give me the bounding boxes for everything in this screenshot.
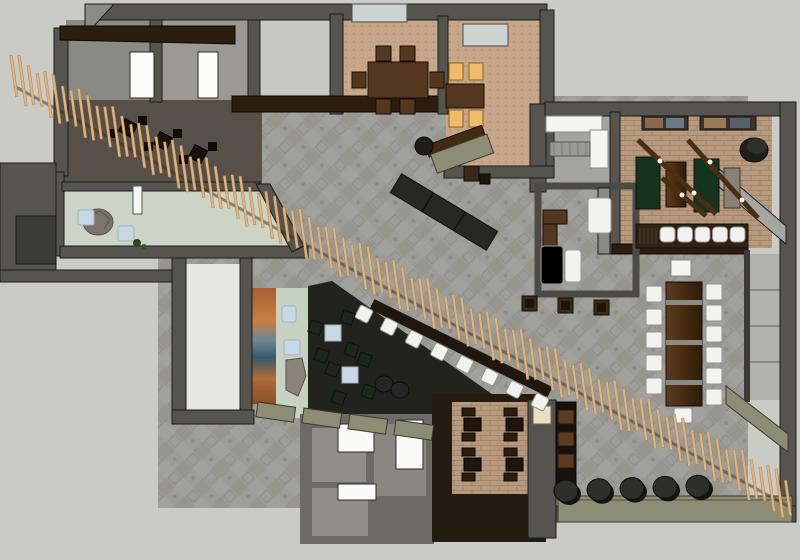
skylight-window-1 [352,4,407,22]
black-stool [415,137,433,155]
dining-table-dark [464,458,481,471]
office-table-2 [565,250,581,282]
cylinder-pouf [653,476,677,498]
corridor-east-wall [240,252,252,414]
table-chair [706,389,722,405]
white-panel-room2 [338,484,376,500]
dining-chair-dark [504,408,517,416]
entry-bench [78,210,94,225]
dining-chair [352,72,366,88]
corridor-floor [186,264,240,412]
metal-band [666,300,702,305]
table-chair [646,286,662,302]
dark-chair [173,129,182,138]
left-bottom-wall [0,270,178,282]
dining-chair [430,72,444,88]
bar-stool [730,227,745,242]
round-pouf [375,376,393,392]
office-table [588,198,611,233]
small-table [464,166,479,181]
north-wall [85,4,547,20]
backroom-east-floor [260,20,332,100]
entry-south-wall [60,246,308,258]
cylinder-pouf [587,479,611,501]
bar-stool [660,227,675,242]
bar-stool [713,227,728,242]
bar-stool [678,227,693,242]
corridor-west-wall [172,252,186,418]
picture-art [666,118,684,128]
table-chair [646,332,662,348]
floorplan-canvas [0,0,800,560]
plant [141,244,147,250]
dining-chair [400,46,415,61]
table-chair [706,347,722,363]
lounge-table [325,325,341,341]
dining-table-right [446,84,484,108]
picture-art [730,118,750,128]
left-block-door [16,216,56,264]
cylinder-pouf [620,478,644,500]
bar-stool [695,227,710,242]
table-chair [646,355,662,371]
window-frame-west [744,250,750,402]
dining-chair [376,99,391,114]
entry-bench [118,226,134,241]
white-door-panel-2 [198,52,218,98]
lounge-bench [282,306,296,322]
dining-chair-dark [504,448,517,456]
corridor-end-wall [172,410,254,424]
rightwing-north-wall [545,102,796,116]
lit-chair [469,63,483,80]
dining-chair-dark [462,433,475,441]
guest-stool-seat [597,303,606,312]
white-door-panel-1 [130,52,154,98]
lit-chair [449,63,463,80]
plant [133,239,141,247]
round-column-top [747,138,767,154]
dining-table-dark [506,418,523,431]
rightwing-east-wall [780,102,796,522]
small-chair [480,174,490,184]
lit-chair [469,110,483,127]
lit-chair [449,110,463,127]
shelf-boxes [558,410,574,468]
cylinder-pouf [554,480,578,502]
dining-chair-dark [462,448,475,456]
entry-light-column [133,186,142,214]
dining-table-dark [506,458,523,471]
dining-chair [376,46,391,61]
picture-art [704,118,726,128]
dining-table-left [368,62,428,98]
table-chair [706,326,722,342]
guest-stool-seat [525,299,534,308]
skylight-window-2 [463,24,508,46]
metal-band [666,340,702,345]
dining-chair-dark [462,408,475,416]
backroom-divider-2 [248,20,260,102]
dark-chair [208,142,217,151]
green-booth [636,157,660,209]
host-stand [671,260,691,276]
dining-table-dark [464,418,481,431]
lounge-bench [284,340,300,355]
cylinder-pouf [686,475,710,497]
table-chair [646,309,662,325]
dining-chair-dark [462,473,475,481]
round-pouf [391,382,409,398]
metal-band [666,380,702,385]
prep-counter [590,130,608,168]
office-desk [543,210,567,224]
mid-vertical-wall [530,104,546,192]
table-chair [706,284,722,300]
picture-art [645,118,663,128]
guest-stool-seat [561,301,570,310]
table-chair [646,378,662,394]
entry-north-wall [62,182,260,191]
table-chair [706,305,722,321]
office-sofa [541,246,563,284]
dining-chair-dark [504,433,517,441]
floorplan-render [0,0,800,560]
table-chair [706,368,722,384]
lounge-table [342,367,358,383]
dining-chair [400,99,415,114]
dining-chair-dark [504,473,517,481]
dining-right-south-wall [444,166,554,178]
booth-bar-stools [660,227,745,242]
